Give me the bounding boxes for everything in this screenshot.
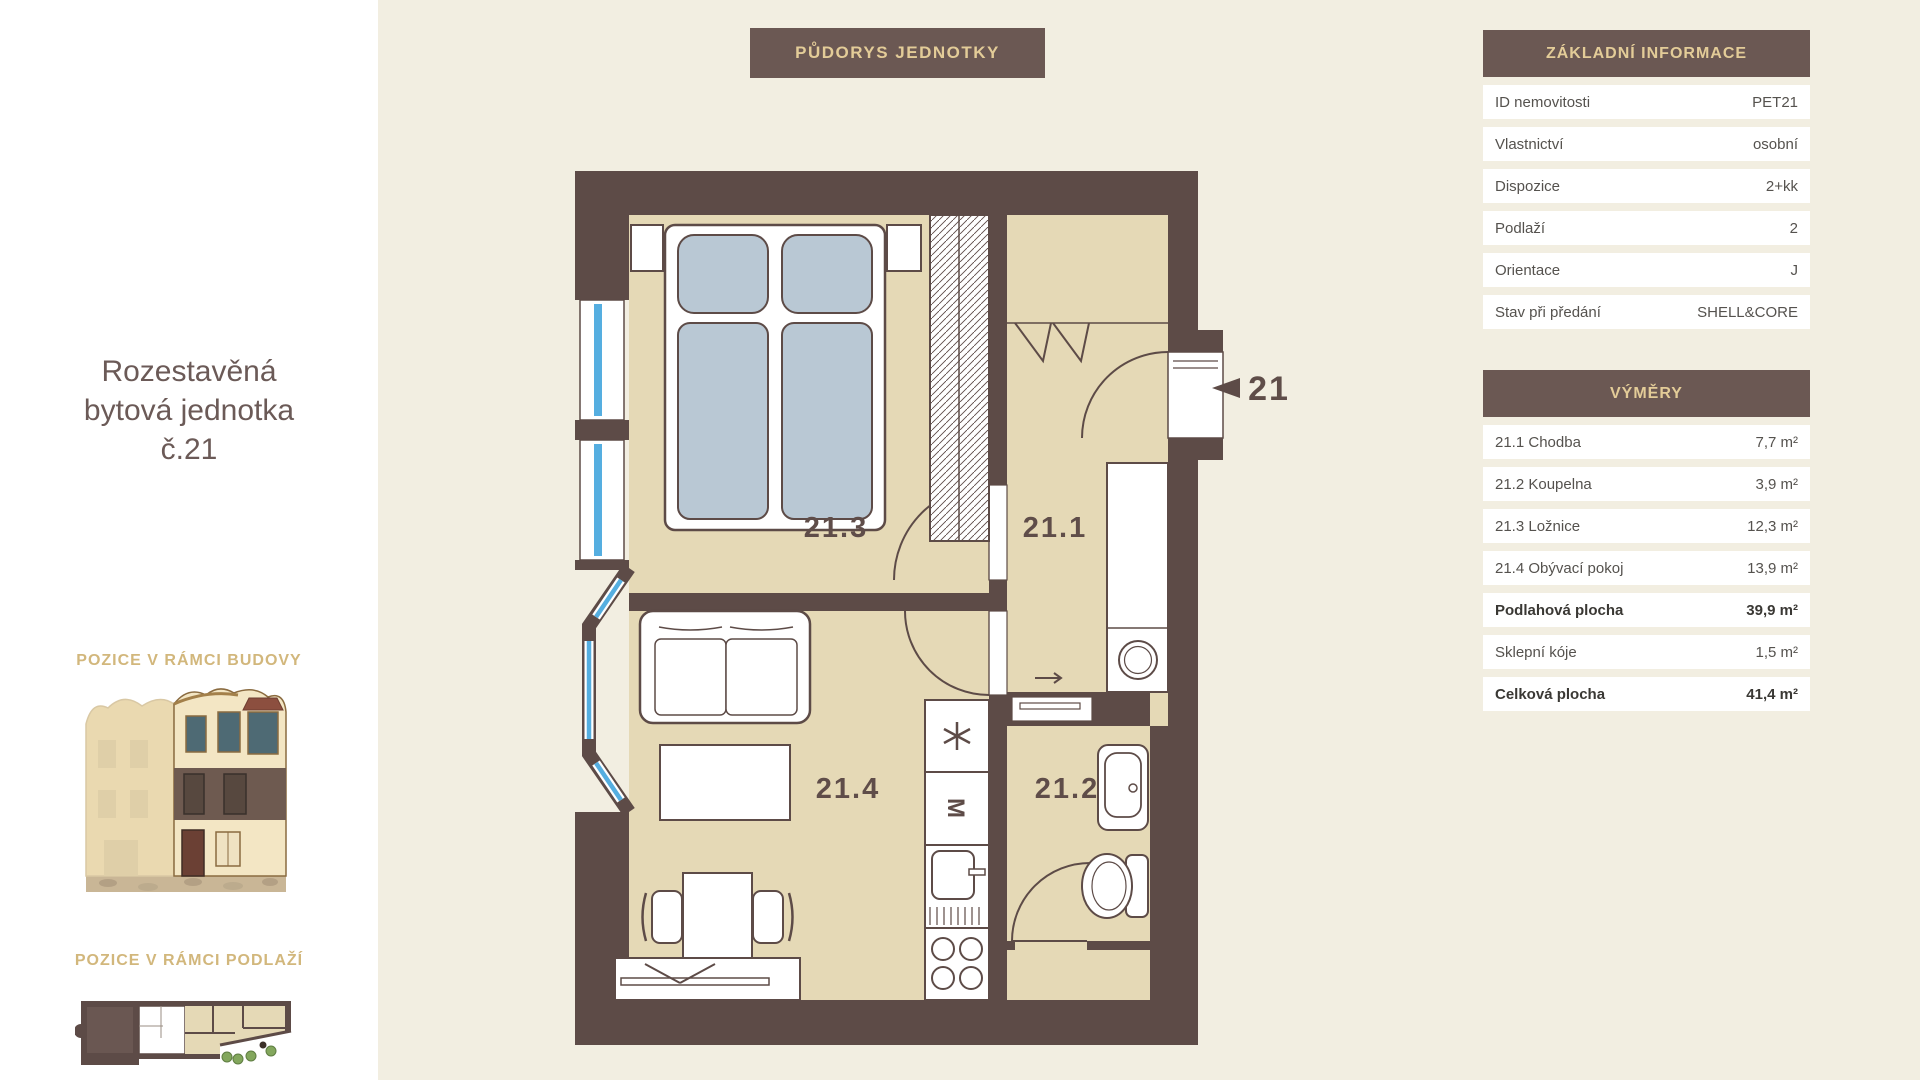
building-position-image [78,682,293,897]
nightstand [631,225,663,271]
bay-window [589,568,629,812]
bay-roof [243,698,283,710]
table-row: 21.1 Chodba7,7 m² [1483,425,1810,459]
basic-info-rows: ID nemovitostiPET21VlastnictvíosobníDisp… [1483,85,1810,329]
mattress [678,323,768,519]
room-label-hall: 21.1 [1023,512,1087,544]
row-value: 39,9 m² [1746,602,1798,619]
row-label: Podlaží [1495,220,1545,237]
table-row: Podlaží2 [1483,211,1810,245]
window-icon [186,716,206,752]
row-label: ID nemovitosti [1495,94,1590,111]
table-row: Podlahová plocha39,9 m² [1483,593,1810,627]
basic-info-table: ZÁKLADNÍ INFORMACE ID nemovitostiPET21Vl… [1483,30,1810,329]
entry-door [182,830,204,876]
areas-table: VÝMĚRY 21.1 Chodba7,7 m²21.2 Koupelna3,9… [1483,370,1810,711]
table-row: ID nemovitostiPET21 [1483,85,1810,119]
coffee-table [660,745,790,820]
row-label: Orientace [1495,262,1560,279]
page-title-line3: č.21 [0,430,378,469]
table-row: 21.3 Ložnice12,3 m² [1483,509,1810,543]
row-value: 13,9 m² [1747,560,1798,577]
row-label: 21.1 Chodba [1495,434,1581,451]
row-value: J [1791,262,1799,279]
tv-bench [615,958,800,1000]
row-value: 1,5 m² [1755,644,1798,661]
areas-title: VÝMĚRY [1483,370,1810,417]
row-label: Dispozice [1495,178,1560,195]
page-title-line2: bytová jednotka [0,391,378,430]
room-label-bathroom: 21.2 [1035,773,1099,805]
oven-symbol: M [942,798,969,818]
wardrobe [930,215,989,541]
table-row: Sklepní kóje1,5 m² [1483,635,1810,669]
table-row: Celková plocha41,4 m² [1483,677,1810,711]
table-row: 21.2 Koupelna3,9 m² [1483,467,1810,501]
tree-icon [233,1054,243,1064]
kitchen-sink [925,845,989,928]
building-silhouette-left [86,699,174,876]
sofa [640,611,810,723]
shuttered-window [224,774,246,814]
highlighted-unit [139,1006,185,1054]
stove [925,928,989,1000]
tree-icon [246,1051,256,1061]
window-icon [218,712,240,752]
row-label: 21.4 Obývací pokoj [1495,560,1623,577]
pillow [678,235,768,313]
table-row: Vlastnictvíosobní [1483,127,1810,161]
plan-title-banner: PŮDORYS JEDNOTKY [750,28,1045,78]
pillow [782,235,872,313]
unit-number-label: 21 [1248,370,1290,408]
floorplan: 21 [575,171,1295,1066]
row-label: Vlastnictví [1495,136,1563,153]
washing-machine-unit [1107,463,1168,692]
room-label-bedroom: 21.3 [804,512,868,544]
table-row: Stav při předáníSHELL&CORE [1483,295,1810,329]
page-title: Rozestavěná bytová jednotka č.21 [0,352,378,469]
page: { "sidebar": { "title_lines": ["Rozestav… [0,0,1920,1080]
bay-window [248,712,278,754]
table-row: OrientaceJ [1483,253,1810,287]
building-photo-right [174,689,286,876]
table-row: Dispozice2+kk [1483,169,1810,203]
toilet [1082,854,1148,918]
row-value: SHELL&CORE [1697,304,1798,321]
row-value: 41,4 m² [1746,686,1798,703]
shuttered-window [184,774,204,814]
areas-rows: 21.1 Chodba7,7 m²21.2 Koupelna3,9 m²21.3… [1483,425,1810,711]
mini-floorplan [75,1001,291,1065]
bathroom-sink [1098,745,1148,830]
basic-info-title: ZÁKLADNÍ INFORMACE [1483,30,1810,77]
row-value: 2+kk [1766,178,1798,195]
page-title-line1: Rozestavěná [0,352,378,391]
row-value: 12,3 m² [1747,518,1798,535]
row-label: Sklepní kóje [1495,644,1577,661]
tree-icon [266,1046,276,1056]
sidebar: Rozestavěná bytová jednotka č.21 POZICE … [0,0,378,1080]
table-row: 21.4 Obývací pokoj13,9 m² [1483,551,1810,585]
section-heading-floor: POZICE V RÁMCI PODLAŽÍ [0,952,378,970]
row-label: Stav při předání [1495,304,1601,321]
floor-position-image [75,993,303,1078]
dining-table [683,873,752,959]
bed [631,225,921,530]
tree-icon [222,1052,232,1062]
row-value: PET21 [1752,94,1798,111]
nightstand [887,225,921,271]
row-value: osobní [1753,136,1798,153]
row-label: 21.3 Ložnice [1495,518,1580,535]
row-value: 3,9 m² [1755,476,1798,493]
kitchen-units: M [925,700,989,1000]
cobblestone-ground [86,876,286,892]
chair [753,891,783,943]
row-label: 21.2 Koupelna [1495,476,1592,493]
row-value: 7,7 m² [1755,434,1798,451]
row-label: Podlahová plocha [1495,602,1623,619]
section-heading-building: POZICE V RÁMCI BUDOVY [0,652,378,670]
mattress [782,323,872,519]
room-label-living: 21.4 [816,773,880,805]
chair [652,891,682,943]
row-value: 2 [1790,220,1798,237]
row-label: Celková plocha [1495,686,1605,703]
